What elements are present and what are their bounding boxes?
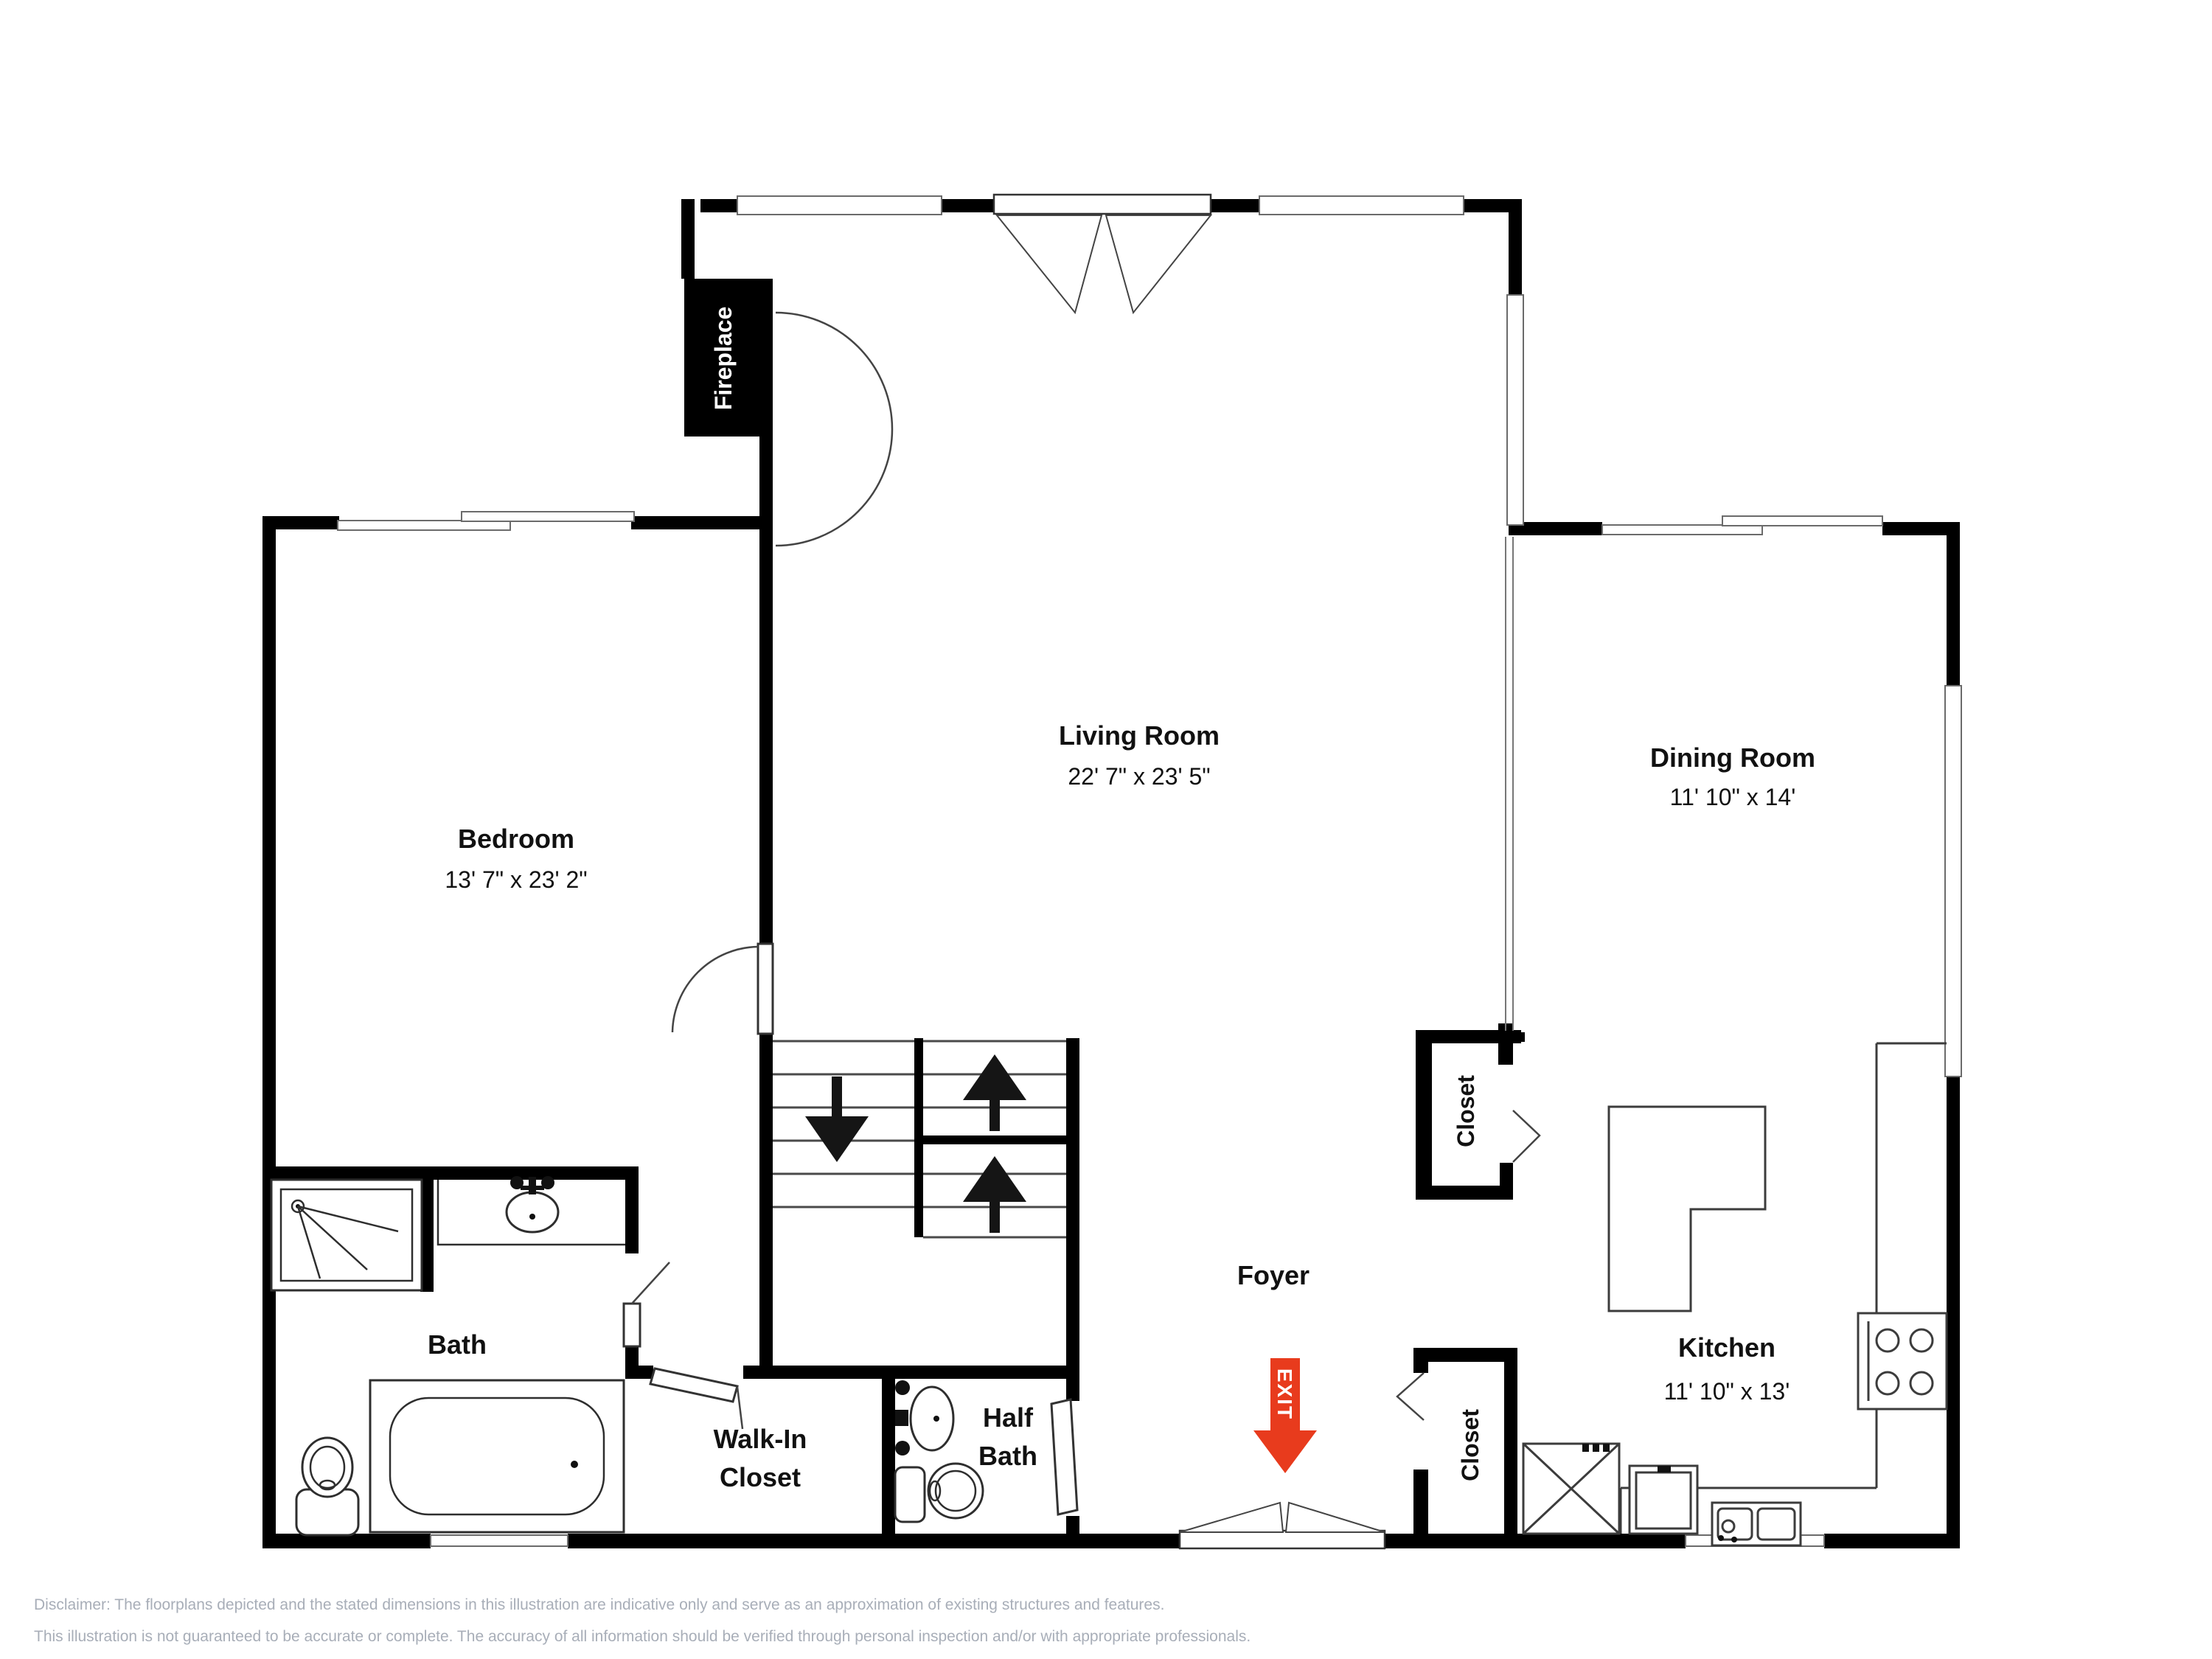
refrigerator-tick <box>1593 1444 1599 1452</box>
patio-door-threshold <box>994 195 1211 214</box>
window <box>462 512 634 521</box>
disclaimer-line-1: Disclaimer: The floorplans depicted and … <box>34 1596 1164 1613</box>
window <box>1945 686 1961 1077</box>
wall-segment <box>681 199 695 279</box>
stove-burner <box>1910 1329 1933 1352</box>
window <box>1722 516 1882 526</box>
kitchen-faucet-dot <box>1718 1535 1724 1541</box>
arrow-head <box>963 1156 1026 1202</box>
arrow-stem <box>990 1202 1000 1233</box>
walk-in-closet-label-line2: Closet <box>720 1462 801 1492</box>
arrow-stem <box>990 1100 1000 1131</box>
stove-burner <box>1910 1372 1933 1394</box>
wall-segment <box>262 1166 639 1180</box>
wall-segment <box>1824 1534 1960 1548</box>
kitchen-faucet-dot <box>1731 1537 1737 1543</box>
wall-segment <box>1385 1534 1686 1548</box>
walk-in-closet-door-swing <box>737 1387 742 1429</box>
half-bath-faucet-handle <box>895 1380 910 1395</box>
wall-segment <box>1211 199 1259 212</box>
exit-arrow: EXIT <box>1253 1358 1317 1473</box>
wall-segment <box>1513 1032 1525 1042</box>
stairs-landing <box>923 1135 1066 1144</box>
window <box>1259 196 1464 215</box>
upper-closet-label: Closet <box>1453 1075 1479 1147</box>
patio-door-swing-right <box>1106 215 1211 313</box>
refrigerator-tick <box>1582 1444 1589 1452</box>
wall-segment <box>1066 1516 1079 1534</box>
fireplace-label: Fireplace <box>710 307 737 411</box>
window <box>737 196 942 215</box>
front-door-swing-right <box>1286 1503 1385 1532</box>
wall-segment <box>882 1379 895 1534</box>
foyer-closet-label: Closet <box>1457 1409 1484 1481</box>
stairs-up-arrow-lower <box>963 1156 1026 1233</box>
half-bath-fixtures <box>895 1380 983 1522</box>
dining-room-dims: 11' 10" x 14' <box>1670 784 1796 810</box>
exit-arrow-head <box>1253 1430 1317 1473</box>
refrigerator-tick <box>1603 1444 1610 1452</box>
front-door-swing-left <box>1180 1503 1283 1532</box>
living-dining-boundary-line <box>1506 537 1513 1031</box>
foyer-label: Foyer <box>1237 1260 1310 1290</box>
bath-sink-drain <box>529 1214 535 1220</box>
bathtub-drain <box>571 1461 578 1468</box>
half-bath-label-line2: Bath <box>978 1441 1037 1471</box>
half-bath-sink-mount <box>895 1410 908 1426</box>
wall-segment <box>568 1534 1180 1548</box>
wall-segment <box>1416 1348 1517 1362</box>
window <box>1507 295 1523 525</box>
bath-sink <box>507 1192 558 1232</box>
half-bath-label-line1: Half <box>983 1402 1034 1433</box>
wall-segment <box>942 199 994 212</box>
wall-segment <box>625 1366 653 1379</box>
floor-plan: Fireplace <box>0 0 2212 1659</box>
front-door-threshold <box>1180 1531 1385 1548</box>
wall-segment <box>1066 1379 1079 1401</box>
arrow-head <box>805 1116 869 1162</box>
bath-door-leaf <box>624 1304 640 1346</box>
half-bath-faucet-handle <box>895 1441 910 1455</box>
wall-segment <box>1066 1038 1079 1366</box>
walk-in-closet-label-line1: Walk-In <box>714 1424 807 1454</box>
bedroom-label: Bedroom <box>458 824 574 854</box>
stove-burner <box>1877 1329 1899 1352</box>
bath-label: Bath <box>428 1329 487 1360</box>
wall-segment <box>743 1366 1079 1379</box>
half-bath-door-leaf <box>1051 1399 1077 1514</box>
wall-segment <box>1947 1077 1960 1548</box>
arrow-head <box>963 1054 1026 1100</box>
wall-segment <box>1413 1348 1428 1373</box>
half-bath-toilet-tank <box>895 1467 925 1522</box>
dishwasher-tick <box>1658 1466 1671 1472</box>
stove <box>1858 1313 1947 1409</box>
walk-in-closet-door-leaf <box>650 1368 737 1402</box>
bedroom-door-arc <box>672 947 758 1032</box>
kitchen-island <box>1609 1107 1765 1311</box>
stairs-divider <box>914 1038 923 1237</box>
wall-segment <box>1413 1470 1428 1548</box>
dishwasher <box>1630 1466 1697 1534</box>
wall-segment <box>1416 1186 1513 1200</box>
wall-segment <box>700 199 737 212</box>
half-bath-sink <box>911 1387 953 1450</box>
stairs-down-arrow <box>805 1077 869 1162</box>
wall-segment <box>625 1180 639 1253</box>
kitchen-dims: 11' 10" x 13' <box>1664 1378 1790 1405</box>
kitchen-fixtures <box>1523 1043 1947 1545</box>
disclaimer-line-2: This illustration is not guaranteed to b… <box>34 1628 1251 1645</box>
wall-segment <box>1509 199 1522 295</box>
patio-door-swing-left <box>997 215 1102 313</box>
wall-segment <box>625 1346 639 1366</box>
shower <box>271 1180 422 1290</box>
kitchen-label: Kitchen <box>1678 1332 1775 1363</box>
wall-segment <box>759 279 773 944</box>
bath-door-swing <box>632 1262 669 1304</box>
fireplace-hearth-arc <box>776 313 892 546</box>
foyer-closet-door <box>1397 1373 1424 1420</box>
wall-segment <box>262 516 339 529</box>
upper-closet-door <box>1513 1110 1540 1162</box>
wall-segment <box>1504 1348 1517 1548</box>
exit-label: EXIT <box>1273 1368 1296 1420</box>
arrow-stem <box>832 1077 842 1119</box>
window <box>431 1535 568 1546</box>
dining-room-label: Dining Room <box>1650 742 1815 773</box>
bedroom-door-leaf <box>758 944 773 1034</box>
wall-segment <box>759 1032 773 1379</box>
wall-segment <box>262 516 276 1548</box>
fireplace: Fireplace <box>684 279 892 546</box>
living-room-dims: 22' 7" x 23' 5" <box>1068 763 1210 790</box>
half-bath-sink-drain <box>933 1416 939 1422</box>
stove-burner <box>1877 1372 1899 1394</box>
bedroom-dims: 13' 7" x 23' 2" <box>445 866 587 893</box>
disclaimer: Disclaimer: The floorplans depicted and … <box>34 1596 1251 1645</box>
living-room-label: Living Room <box>1059 720 1220 751</box>
wall-segment <box>1416 1030 1432 1200</box>
wall-segment <box>1947 522 1960 686</box>
bath-faucet-bar <box>521 1186 544 1190</box>
wall-segment <box>631 516 773 529</box>
stairs-up-arrow-upper <box>963 1054 1026 1131</box>
